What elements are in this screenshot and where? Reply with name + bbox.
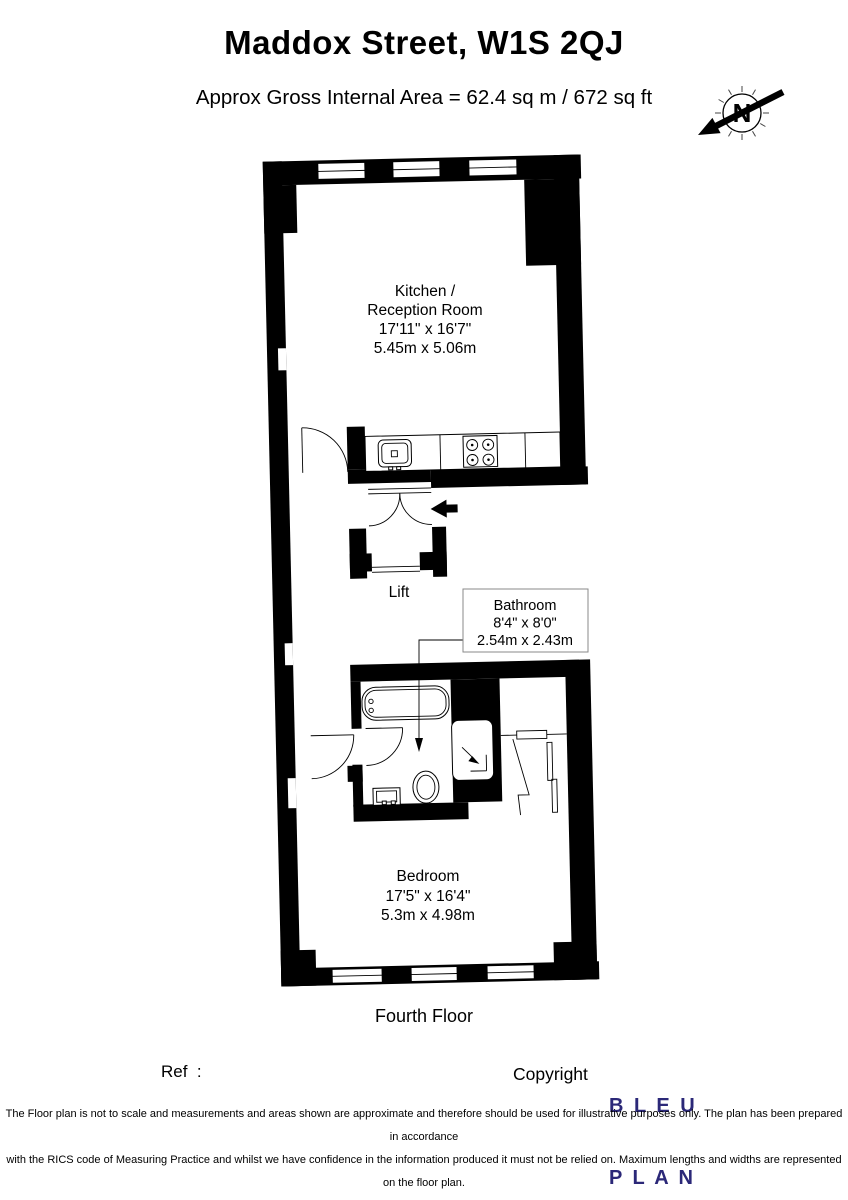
svg-text:Bedroom: Bedroom	[397, 868, 460, 885]
window-icon	[469, 159, 517, 176]
window-icon	[318, 162, 365, 179]
svg-text:2.54m x 2.43m: 2.54m x 2.43m	[477, 633, 573, 649]
svg-text:5.45m x 5.06m: 5.45m x 5.06m	[374, 340, 477, 357]
disclaimer: The Floor plan is not to scale and measu…	[0, 1103, 848, 1200]
lift-label: Lift	[389, 584, 410, 601]
disclaimer-line: The Floor plan is not to scale and measu…	[0, 1103, 848, 1149]
window-icon	[332, 968, 382, 983]
entry-double-door	[368, 488, 432, 526]
floor-label: Fourth Floor	[0, 1006, 848, 1027]
entrance-arrow-icon	[430, 499, 457, 518]
window-icon	[393, 161, 440, 178]
window-icon	[487, 965, 534, 980]
svg-text:Bathroom: Bathroom	[494, 598, 557, 614]
plan-graphics	[263, 154, 600, 986]
toilet-icon	[413, 771, 440, 804]
disclaimer-line: If there is any aspect of particular imp…	[0, 1195, 848, 1200]
svg-text:17'5" x 16'4": 17'5" x 16'4"	[385, 888, 470, 905]
north-compass-icon: N	[698, 86, 783, 140]
bedroom-label: Bedroom 17'5" x 16'4" 5.3m x 4.98m	[381, 868, 475, 924]
bathtub-icon	[362, 686, 450, 721]
svg-text:Reception Room: Reception Room	[367, 302, 482, 319]
basin-icon	[373, 788, 400, 806]
kitchen-label: Kitchen / Reception Room 17'11" x 16'7" …	[367, 283, 482, 357]
compass-n-label: N	[733, 98, 752, 128]
svg-text:Kitchen /: Kitchen /	[395, 283, 456, 300]
kitchen-sink-icon	[378, 439, 412, 470]
svg-text:8'4" x 8'0": 8'4" x 8'0"	[493, 616, 556, 632]
walls	[263, 154, 600, 986]
bathroom-door-arc	[366, 728, 404, 766]
stove-icon	[463, 435, 498, 467]
ref-label: Ref :	[161, 1062, 202, 1082]
plan-labels: Kitchen / Reception Room 17'11" x 16'7" …	[367, 283, 588, 924]
floorplan-page: Maddox Street, W1S 2QJ Approx Gross Inte…	[0, 0, 848, 1200]
svg-text:17'11" x 16'7": 17'11" x 16'7"	[379, 321, 471, 338]
lift-door	[372, 566, 420, 572]
wardrobe-icon	[501, 730, 569, 815]
disclaimer-line: with the RICS code of Measuring Practice…	[0, 1149, 848, 1195]
window-icon	[411, 966, 457, 981]
copyright-label: Copyright	[513, 1064, 588, 1085]
svg-text:5.3m x 4.98m: 5.3m x 4.98m	[381, 907, 475, 924]
shower-icon	[451, 720, 493, 781]
kitchen-door-arc	[302, 427, 348, 473]
